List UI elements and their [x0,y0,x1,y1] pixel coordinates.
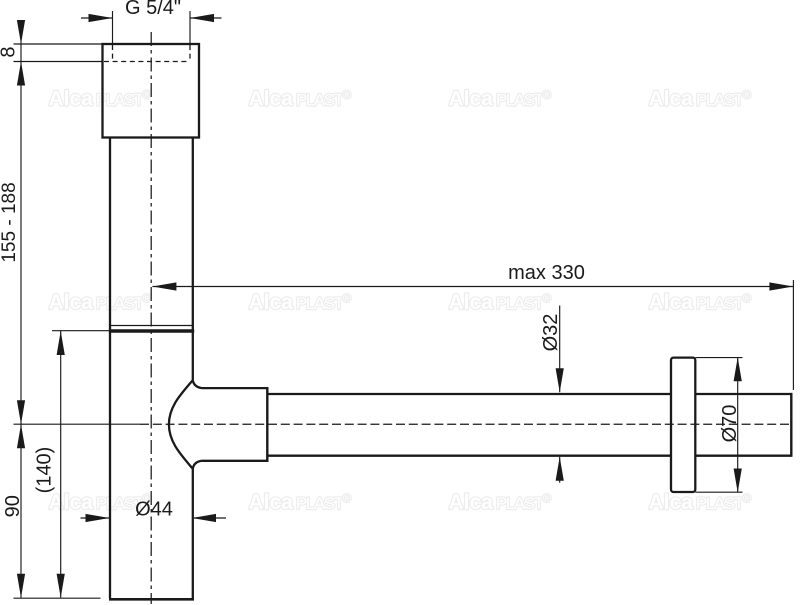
svg-text:AlcaPLAST®: AlcaPLAST® [49,291,151,314]
svg-text:AlcaPLAST®: AlcaPLAST® [249,88,351,111]
svg-text:AlcaPLAST®: AlcaPLAST® [249,491,351,514]
svg-text:max 330: max 330 [508,262,585,284]
svg-text:AlcaPLAST®: AlcaPLAST® [649,291,751,314]
svg-text:Ø32: Ø32 [540,314,562,352]
svg-text:(140): (140) [34,447,56,494]
svg-text:Ø70: Ø70 [719,405,741,443]
svg-text:155 - 188: 155 - 188 [0,182,20,262]
svg-text:90: 90 [2,495,24,517]
svg-text:8: 8 [0,46,20,57]
svg-text:G 5/4": G 5/4" [125,0,181,19]
svg-text:AlcaPLAST®: AlcaPLAST® [649,491,751,514]
svg-text:AlcaPLAST®: AlcaPLAST® [649,88,751,111]
svg-text:AlcaPLAST®: AlcaPLAST® [449,88,551,111]
svg-text:AlcaPLAST®: AlcaPLAST® [49,88,151,111]
svg-text:AlcaPLAST®: AlcaPLAST® [249,291,351,314]
svg-text:AlcaPLAST®: AlcaPLAST® [449,491,551,514]
svg-text:AlcaPLAST®: AlcaPLAST® [449,291,551,314]
svg-text:Ø44: Ø44 [135,499,173,521]
